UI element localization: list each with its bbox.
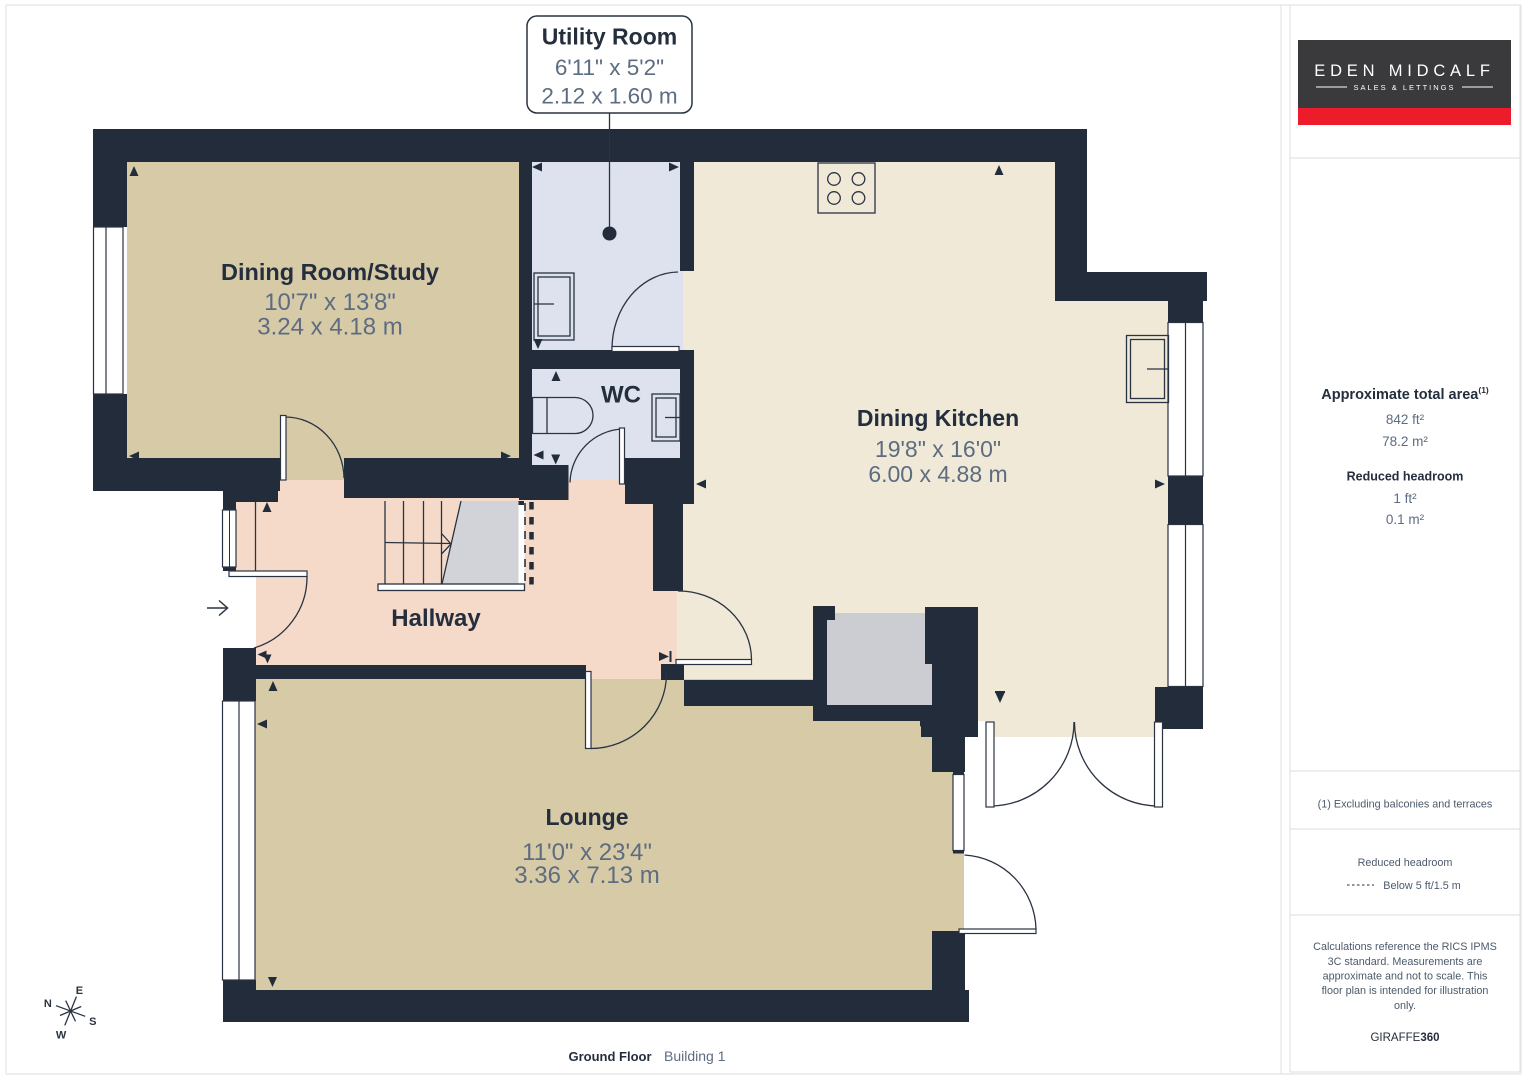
svg-text:842 ft²: 842 ft² xyxy=(1386,412,1425,427)
svg-text:S: S xyxy=(89,1016,96,1028)
svg-text:6'11" x 5'2": 6'11" x 5'2" xyxy=(555,55,664,80)
svg-text:78.2 m²: 78.2 m² xyxy=(1382,434,1428,449)
svg-text:floor plan is intended for ill: floor plan is intended for illustration xyxy=(1322,985,1489,997)
svg-text:1 ft²: 1 ft² xyxy=(1393,491,1417,506)
svg-text:6.00 x 4.88 m: 6.00 x 4.88 m xyxy=(868,461,1007,487)
svg-text:Below 5 ft/1.5 m: Below 5 ft/1.5 m xyxy=(1383,880,1460,892)
svg-text:approximate and not to scale.: approximate and not to scale. This xyxy=(1323,971,1488,983)
svg-text:GIRAFFE360: GIRAFFE360 xyxy=(1370,1032,1439,1044)
svg-text:3.24 x 4.18 m: 3.24 x 4.18 m xyxy=(257,314,402,341)
svg-text:Lounge: Lounge xyxy=(545,804,628,830)
svg-text:EDEN MIDCALF: EDEN MIDCALF xyxy=(1314,62,1494,80)
svg-text:Building 1: Building 1 xyxy=(664,1048,726,1064)
svg-text:10'7" x 13'8": 10'7" x 13'8" xyxy=(264,289,396,316)
svg-text:Ground Floor: Ground Floor xyxy=(568,1049,651,1064)
svg-text:Utility Room: Utility Room xyxy=(542,24,677,50)
svg-text:only.: only. xyxy=(1394,1000,1416,1012)
svg-text:Reduced headroom: Reduced headroom xyxy=(1347,470,1464,484)
svg-text:WC: WC xyxy=(601,382,641,409)
svg-text:SALES & LETTINGS: SALES & LETTINGS xyxy=(1353,83,1455,92)
svg-text:N: N xyxy=(44,998,52,1010)
svg-text:3.36 x 7.13 m: 3.36 x 7.13 m xyxy=(514,862,659,889)
svg-text:19'8" x 16'0": 19'8" x 16'0" xyxy=(875,436,1001,462)
svg-text:Dining Room/Study: Dining Room/Study xyxy=(221,259,439,285)
svg-text:E: E xyxy=(76,985,83,997)
svg-text:3C standard. Measurements are: 3C standard. Measurements are xyxy=(1328,956,1483,968)
svg-text:2.12 x 1.60 m: 2.12 x 1.60 m xyxy=(541,84,677,109)
svg-text:(1) Excluding balconies and te: (1) Excluding balconies and terraces xyxy=(1318,799,1493,811)
svg-text:Calculations reference the RIC: Calculations reference the RICS IPMS xyxy=(1313,941,1497,953)
svg-text:Approximate total area(1): Approximate total area(1) xyxy=(1321,385,1489,403)
svg-text:W: W xyxy=(56,1030,67,1042)
svg-text:Hallway: Hallway xyxy=(391,605,481,632)
svg-text:Dining Kitchen: Dining Kitchen xyxy=(857,405,1019,431)
svg-text:Reduced headroom: Reduced headroom xyxy=(1358,857,1453,869)
svg-text:0.1 m²: 0.1 m² xyxy=(1386,512,1425,527)
